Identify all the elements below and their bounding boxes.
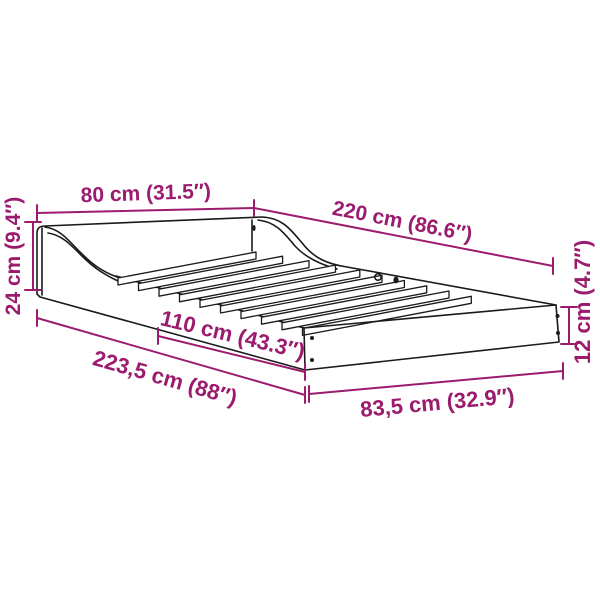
dim-foot-section-label: 83,5 cm (32.9″)	[359, 383, 515, 422]
dim-foot-height-label: 12 cm (4.7″)	[570, 240, 595, 364]
dim-foot-height: 12 cm (4.7″)	[561, 240, 595, 364]
screw-hole-icon	[310, 336, 314, 340]
dim-top-width: 80 cm (31.5″)	[37, 180, 254, 221]
screw-hole-icon	[393, 277, 398, 284]
screw-hole-icon	[310, 358, 314, 362]
screw-hole-icon	[556, 314, 560, 318]
dim-back-length-label: 220 cm (86.6″)	[330, 197, 474, 247]
dim-line	[37, 208, 254, 213]
screw-hole-icon	[252, 225, 255, 231]
dim-foot-section: 83,5 cm (32.9″)	[309, 363, 563, 422]
dim-top-width-label: 80 cm (31.5″)	[80, 180, 211, 208]
dim-headboard-height: 24 cm (9.4″)	[2, 197, 41, 316]
screw-hole-icon	[556, 331, 560, 335]
bed-dimension-svg: 80 cm (31.5″) 220 cm (86.6″) 24 cm (9.4″…	[0, 0, 600, 600]
product-dimension-diagram: 80 cm (31.5″) 220 cm (86.6″) 24 cm (9.4″…	[0, 0, 600, 600]
dim-headboard-height-label: 24 cm (9.4″)	[2, 197, 25, 316]
